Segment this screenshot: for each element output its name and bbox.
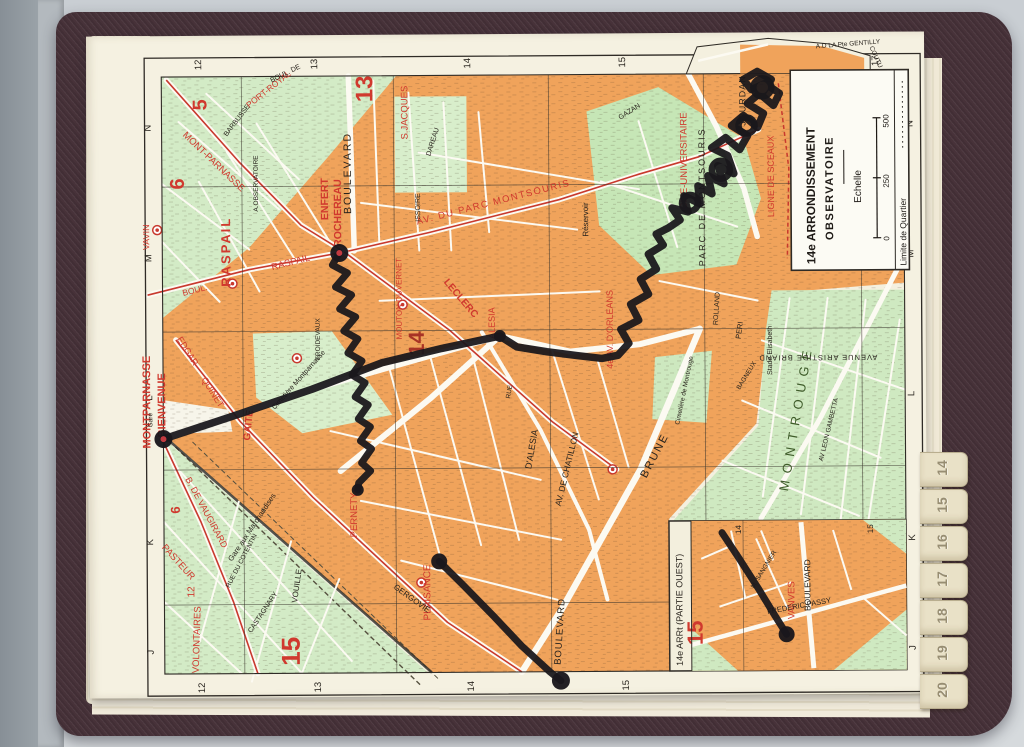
map-svg: 12121313141415151617NNMMLLKKJJ MONTPARNA… [86,31,928,698]
route-dot [779,626,795,642]
photo-background: 12121313141415151617NNMMLLKKJJ MONTPARNA… [0,0,1024,747]
map-label: VANVES [786,581,797,619]
grid-col-label: 12 [197,683,208,694]
grid-col-label: 15 [617,57,628,68]
page-tab[interactable]: 17 [920,563,968,598]
map-label: A.OBSERVATOIRE [253,155,260,212]
grid-row-label: J [146,650,157,655]
map-label: 14 [734,525,743,535]
map-label: S.JACQUES [399,86,410,140]
scale-250: 250 [882,174,891,188]
page-tab[interactable]: 20 [920,674,968,709]
grid-col-label: 13 [313,682,324,693]
legend-echelle-label: Echelle [853,170,864,203]
grid-row-label: L [906,391,917,396]
map-label: Stade Elisabeth [767,326,774,375]
tab-label: 19 [934,645,950,661]
metro-marker [153,226,162,235]
route-dot-center [160,436,166,442]
map-label: 12 [186,586,197,598]
map-label: BOULEVARD [342,132,355,214]
map-label: RASPAIL [218,217,233,287]
page-tab[interactable]: 15 [920,489,968,524]
tab-label: 15 [934,497,950,513]
map-label: 6 [167,178,189,189]
route-dot [431,553,447,569]
map-label: 5 [189,99,211,110]
tab-label: 18 [934,608,950,624]
page-tab[interactable]: 18 [920,600,968,635]
legend-arrondissement: 14e ARRONDISSEMENT [804,127,819,265]
map-label: 6 [168,506,183,513]
map-label: ISSOIRE [415,193,422,222]
grid-row-label: J [908,645,919,650]
map-label: MONTPARNASSE [141,356,154,449]
grid-col-label: 12 [193,60,204,71]
grid-row-label: N [143,125,154,132]
map-sheet: 12121313141415151617NNMMLLKKJJ MONTPARNA… [86,31,928,698]
metro-marker [292,354,301,363]
tab-label: 14 [934,460,950,476]
map-label: 13 [351,75,378,102]
legend-quartier: OBSERVATOIRE [824,136,837,240]
page-tab[interactable]: 19 [920,637,968,672]
legend-limite: Limite de Quartier [898,198,908,266]
grid-col-label: 14 [462,58,473,69]
map-label: 15 [276,637,306,666]
route-dot-center [336,250,342,256]
map-label: 15 [866,524,875,534]
grid-row-label: K [907,534,918,541]
grid-col-label: 13 [309,59,320,70]
scale-500: 500 [881,114,890,128]
route-dot [552,672,570,690]
map-label: FROIDEVAUX [315,318,322,360]
grid-col-label: 14 [466,681,477,692]
map-label: VOLONTAIRES [191,606,204,673]
metro-marker [608,465,617,474]
map-label: Réservoir [581,202,590,237]
map-label: ENFERT [319,177,331,220]
map-label: MOUTON DUVERNET [394,258,403,340]
route-dot [494,330,506,342]
route-dot [352,484,364,496]
map-label: BOULEVARD [802,559,812,611]
map-label: 15 [683,621,708,646]
map-label: LIGNE DE SCEAUX [766,136,776,218]
scale-0: 0 [882,236,891,241]
page-tab[interactable]: 16 [920,526,968,561]
map-label: Gare [147,413,154,428]
grid-row-label: M [143,254,154,262]
page-tab[interactable]: 14 [920,452,968,487]
legend-box: 14e ARRONDISSEMENT OBSERVATOIRE Echelle … [790,70,909,271]
inset-title: 14e ARRt (PARTIE OUEST) [674,554,685,666]
wall-edge-dark [0,0,38,747]
map-label: VAVIN [141,224,151,250]
tab-label: 20 [934,682,950,698]
map-label: AVENUE ARISTIDE BRIAND [758,353,877,363]
map-label: PERNETY [349,492,360,538]
grid-row-label: K [145,538,156,545]
tab-label: 17 [934,571,950,587]
grid-col-label: 15 [621,680,632,691]
tab-label: 16 [934,534,950,550]
